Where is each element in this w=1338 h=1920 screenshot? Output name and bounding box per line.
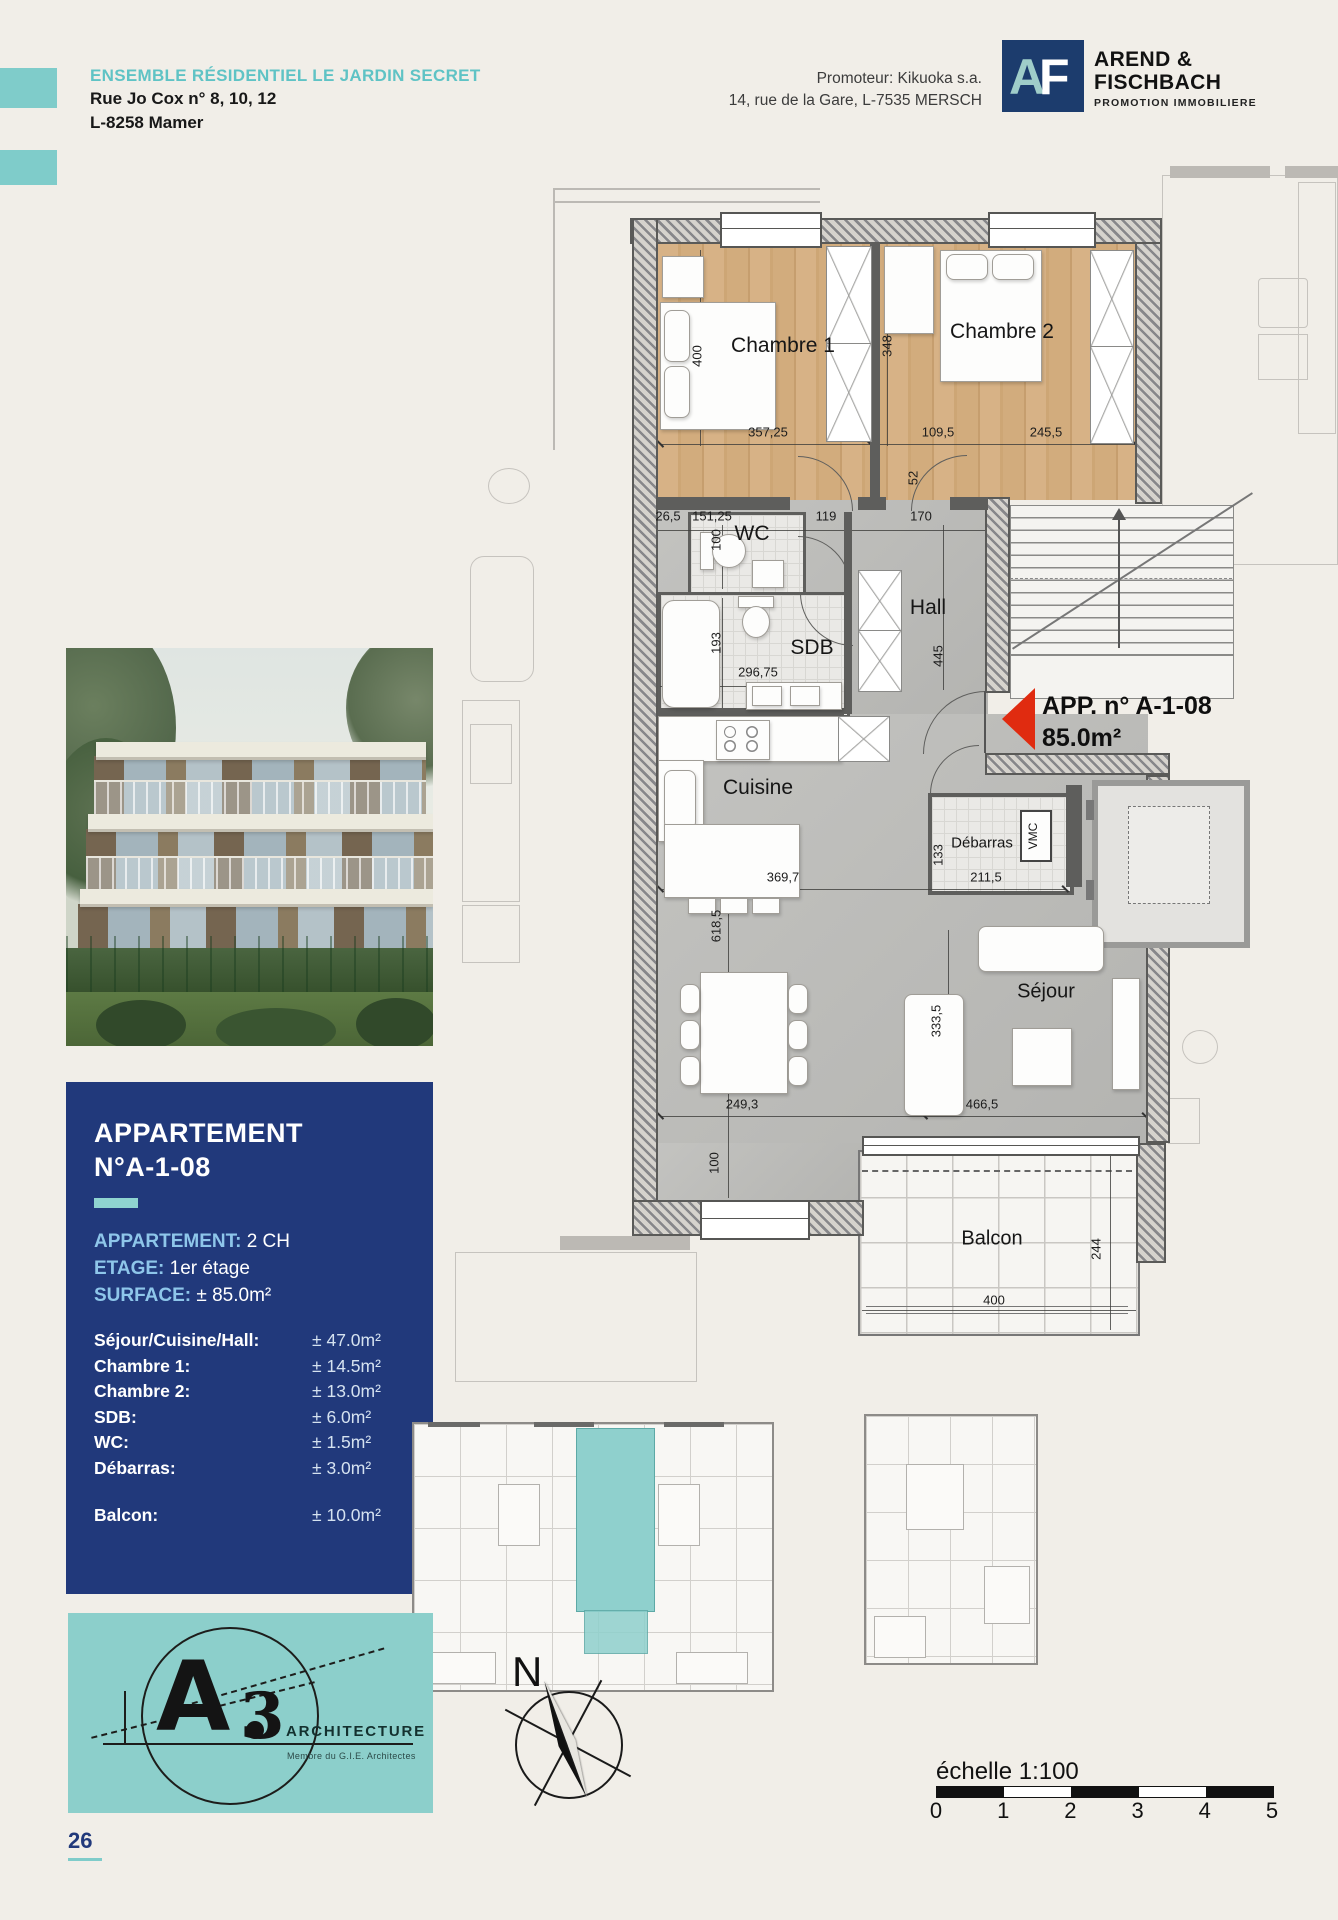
spec-label: ETAGE: (94, 1258, 164, 1279)
dimension-label: 119 (816, 509, 837, 524)
brochure-page: ENSEMBLE RÉSIDENTIEL LE JARDIN SECRET Ru… (0, 0, 1338, 1920)
spec-row: APPARTEMENT: 2 CH (94, 1228, 290, 1255)
dimension-label: 618,5 (709, 910, 724, 943)
spec-value: 2 CH (241, 1231, 290, 1252)
project-title: ENSEMBLE RÉSIDENTIEL LE JARDIN SECRET (90, 66, 481, 86)
logo-name-line2: FISCHBACH (1094, 71, 1221, 95)
neighbor-balcony (455, 1252, 697, 1382)
neighbor-sink (1168, 1098, 1200, 1144)
room-area-value: ± 1.5m² (312, 1430, 371, 1456)
room-area-row: Débarras:± 3.0m² (94, 1456, 414, 1482)
elevator-door-mark (1086, 800, 1094, 820)
scale-seg (1139, 1787, 1206, 1797)
toilet-bowl (742, 606, 770, 638)
chair (788, 1020, 808, 1050)
dimension-label: 357,25 (748, 425, 788, 440)
stool (720, 898, 748, 914)
pillow (664, 310, 690, 362)
unit-label: APP. n° A-1-08 (1042, 692, 1212, 721)
room-area-label: WC: (94, 1432, 129, 1452)
architect-logo-box: A 3 ARCHITECTURE Membre du G.I.E. Archit… (68, 1613, 433, 1813)
stove-burners-icon (724, 726, 736, 738)
architect-subtext: Membre du G.I.E. Architectes (287, 1751, 416, 1761)
window-chambre1 (720, 212, 822, 248)
dim-line (660, 444, 1137, 445)
room-label: Séjour (1017, 981, 1075, 1004)
living-floor-lower (658, 1143, 862, 1203)
room-area-row: Chambre 1:± 14.5m² (94, 1354, 414, 1380)
scale-tick-labels: 012345 (936, 1798, 1272, 1824)
room-area-value: ± 10.0m² (312, 1503, 381, 1529)
neighbor-bathtub (470, 556, 534, 682)
room-label: SDB (790, 636, 833, 660)
logo-name-line1: AREND & (1094, 48, 1192, 72)
pillow (992, 254, 1034, 280)
room-label: WC (735, 522, 770, 546)
room-area-label: Débarras: (94, 1458, 176, 1478)
dimension-label: 100 (709, 529, 724, 551)
panel-accent-bar (94, 1198, 138, 1208)
dimension-label: 133 (931, 844, 946, 866)
neighbor-toilet (488, 468, 530, 504)
dimension-label: 369,7 (767, 870, 800, 885)
room-area-row: Séjour/Cuisine/Hall:± 47.0m² (94, 1328, 414, 1354)
neighbor-appliance (462, 905, 520, 963)
scale-label: échelle 1:100 (936, 1758, 1079, 1786)
dimension-label: 400 (983, 1293, 1005, 1308)
neighbor-sink (470, 724, 512, 784)
bathtub (662, 600, 720, 708)
dimension-label: 100 (707, 1152, 722, 1174)
staircase (1010, 505, 1234, 655)
dimension-label: 151,25 (692, 509, 732, 524)
spec-label: SURFACE: (94, 1285, 191, 1306)
room-label: Chambre 2 (950, 320, 1054, 344)
hall-closet-icon (858, 630, 902, 692)
hall-closet-icon (858, 570, 902, 632)
scale-tick: 1 (997, 1798, 1009, 1824)
wall-bedroom-bottom (858, 497, 886, 510)
room-label: VMC (1026, 823, 1040, 850)
desk-chambre2 (884, 246, 934, 334)
exterior-wall-left (632, 218, 658, 1208)
mini-room (984, 1566, 1030, 1624)
promoter-block: Promoteur: Kikuoka s.a. 14, rue de la Ga… (600, 68, 982, 112)
site-line (553, 188, 555, 450)
arend-fischbach-logo-icon: A F (1002, 40, 1084, 112)
neighbor-wall (1170, 166, 1270, 178)
neighbor-toilet (1182, 1030, 1218, 1064)
dimension-label: 245,5 (1030, 425, 1063, 440)
spec-row: SURFACE: ± 85.0m² (94, 1282, 290, 1309)
a3-letter: A (156, 1641, 230, 1753)
promoter-line1: Promoteur: Kikuoka s.a. (600, 68, 982, 90)
a3-dot (246, 1721, 264, 1739)
dimension-label: 244 (1089, 1238, 1104, 1260)
pillow (946, 254, 988, 280)
neighbor-window-wall (560, 1236, 690, 1250)
unit-area-label: 85.0m² (1042, 724, 1121, 753)
room-area-label: Chambre 1: (94, 1356, 190, 1376)
panel-title-line2: N°A-1-08 (94, 1150, 303, 1184)
kitchen-cabinet-icon (838, 716, 890, 762)
stair-arrow-line (1118, 516, 1120, 648)
stool (752, 898, 780, 914)
room-area-label: SDB: (94, 1407, 137, 1427)
mini-balcony (424, 1652, 496, 1684)
panel-title-line1: APPARTEMENT (94, 1116, 303, 1150)
dimension-label: 193 (709, 632, 724, 654)
highlighted-unit-a108 (576, 1428, 655, 1612)
stove (716, 720, 770, 760)
exterior-wall-hall (985, 497, 1010, 693)
header-accent-block-1 (0, 68, 57, 108)
room-areas-list: Séjour/Cuisine/Hall:± 47.0m²Chambre 1:± … (94, 1328, 414, 1529)
window-chambre2 (988, 212, 1096, 248)
dim-line (862, 1310, 1136, 1311)
floor-overview-plan-left (412, 1422, 774, 1692)
spec-row: ETAGE: 1er étage (94, 1255, 290, 1282)
room-area-row: Balcon:± 10.0m² (94, 1503, 414, 1529)
dimension-label: 348 (880, 335, 895, 357)
wc-sink (752, 560, 784, 588)
coffee-table (1012, 1028, 1072, 1086)
wardrobe-icon (826, 246, 872, 345)
sideboard (1112, 978, 1140, 1090)
floor-overview-plan-right (864, 1414, 1038, 1665)
chair (680, 1020, 700, 1050)
spec-value: 1er étage (164, 1258, 250, 1279)
apartment-info-panel: APPARTEMENT N°A-1-08 APPARTEMENT: 2 CHET… (66, 1082, 433, 1594)
kitchen-sink (664, 770, 696, 830)
mini-wall (428, 1422, 480, 1427)
room-area-value: ± 47.0m² (312, 1328, 381, 1354)
highlighted-unit-balcony (584, 1610, 648, 1654)
room-label: Balcon (961, 1228, 1022, 1251)
neighbor-cabinet (1258, 334, 1308, 380)
room-area-label: Séjour/Cuisine/Hall: (94, 1330, 259, 1350)
scale-tick: 2 (1064, 1798, 1076, 1824)
dimension-label: 333,5 (929, 1005, 944, 1038)
spec-label: APPARTEMENT: (94, 1231, 241, 1252)
neighbor-wall (1285, 166, 1338, 178)
scale-seg (1004, 1787, 1071, 1797)
kitchen-island (664, 824, 800, 898)
chair (680, 984, 700, 1014)
dimension-label: 211,5 (970, 870, 1002, 885)
mini-wall (664, 1422, 724, 1427)
dimension-label: 109,5 (922, 425, 955, 440)
spec-value: ± 85.0m² (191, 1285, 271, 1306)
scale-seg (1071, 1787, 1138, 1797)
chair (680, 1056, 700, 1086)
dimension-label: 400 (690, 345, 705, 367)
logo-letter-f: F (1039, 48, 1070, 106)
panel-title: APPARTEMENT N°A-1-08 (94, 1116, 303, 1184)
mini-wall (534, 1422, 594, 1427)
promoter-line2: 14, rue de la Gare, L-7535 MERSCH (600, 90, 982, 112)
room-label: Hall (910, 596, 946, 620)
mini-stair (906, 1464, 964, 1530)
dimension-label: 249,3 (726, 1097, 759, 1112)
mini-stair (498, 1484, 540, 1546)
page-number: 26 (68, 1828, 92, 1854)
room-label: Débarras (951, 835, 1013, 852)
page-number-underline (68, 1858, 102, 1861)
scale-tick: 3 (1131, 1798, 1143, 1824)
room-area-value: ± 13.0m² (312, 1379, 381, 1405)
balcony-sliding-door (862, 1136, 1140, 1156)
scale-seg (1206, 1787, 1273, 1797)
dimension-label: 296,75 (738, 665, 778, 680)
wardrobe-icon (1090, 250, 1134, 348)
sink (752, 686, 782, 706)
balcony-dashed-line (862, 1170, 1132, 1172)
dining-table (700, 972, 788, 1094)
room-area-value: ± 3.0m² (312, 1456, 371, 1482)
architect-name: ARCHITECTURE (286, 1723, 426, 1740)
room-area-value: ± 6.0m² (312, 1405, 371, 1431)
pillow (664, 366, 690, 418)
room-area-row: SDB:± 6.0m² (94, 1405, 414, 1431)
a3-dim-mark (124, 1691, 126, 1743)
scale-tick: 0 (930, 1798, 942, 1824)
scale-bar (936, 1786, 1274, 1798)
wall-debarras-right (1066, 785, 1082, 887)
mini-balcony (874, 1616, 926, 1658)
mini-stair (658, 1484, 700, 1546)
dim-line (1110, 1155, 1111, 1330)
room-area-row: WC:± 1.5m² (94, 1430, 414, 1456)
scale-tick: 5 (1266, 1798, 1278, 1824)
room-label: Chambre 1 (731, 334, 835, 358)
elevator-door-mark (1086, 880, 1094, 900)
window-sejour (700, 1200, 810, 1240)
room-area-label: Chambre 2: (94, 1381, 190, 1401)
sofa (978, 926, 1104, 972)
neighbor-stove (1258, 278, 1308, 328)
dim-line (658, 530, 988, 531)
chair (788, 984, 808, 1014)
scale-seg (937, 1787, 1004, 1797)
scale-tick: 4 (1199, 1798, 1211, 1824)
logo-tagline: PROMOTION IMMOBILIERE (1094, 97, 1257, 109)
room-area-value: ± 14.5m² (312, 1354, 381, 1380)
room-area-row: Chambre 2:± 13.0m² (94, 1379, 414, 1405)
dresser (662, 256, 704, 298)
chair (788, 1056, 808, 1086)
entrance-door-leaf (984, 691, 986, 753)
site-line (555, 188, 820, 190)
unit-pointer-arrow-icon (1002, 688, 1035, 750)
dimension-label: 170 (910, 509, 932, 524)
sink (790, 686, 820, 706)
header-accent-block-2 (0, 150, 57, 185)
building-photo (66, 648, 433, 1046)
dimension-label: 52 (906, 471, 921, 485)
wall-common-area (985, 753, 1170, 775)
apartment-specs: APPARTEMENT: 2 CHETAGE: 1er étageSURFACE… (94, 1228, 290, 1309)
exterior-wall-right-bedrooms (1135, 242, 1162, 504)
a3-digit: 3 (240, 1679, 285, 1754)
dim-line (660, 1116, 1146, 1117)
room-area-label: Balcon: (94, 1505, 158, 1525)
elevator-car (1128, 806, 1210, 904)
dimension-label: 466,5 (966, 1097, 999, 1112)
dimension-label: 26,5 (655, 509, 680, 524)
project-address-line2: L-8258 Mamer (90, 113, 203, 133)
project-address-line1: Rue Jo Cox n° 8, 10, 12 (90, 89, 276, 109)
site-line (555, 201, 820, 203)
room-label: Cuisine (723, 776, 793, 800)
wall-balcony-right (1136, 1143, 1166, 1263)
dimension-label: 445 (931, 645, 946, 667)
mini-balcony (676, 1652, 748, 1684)
wardrobe-icon (1090, 346, 1134, 444)
stair-arrow-head (1112, 508, 1126, 520)
